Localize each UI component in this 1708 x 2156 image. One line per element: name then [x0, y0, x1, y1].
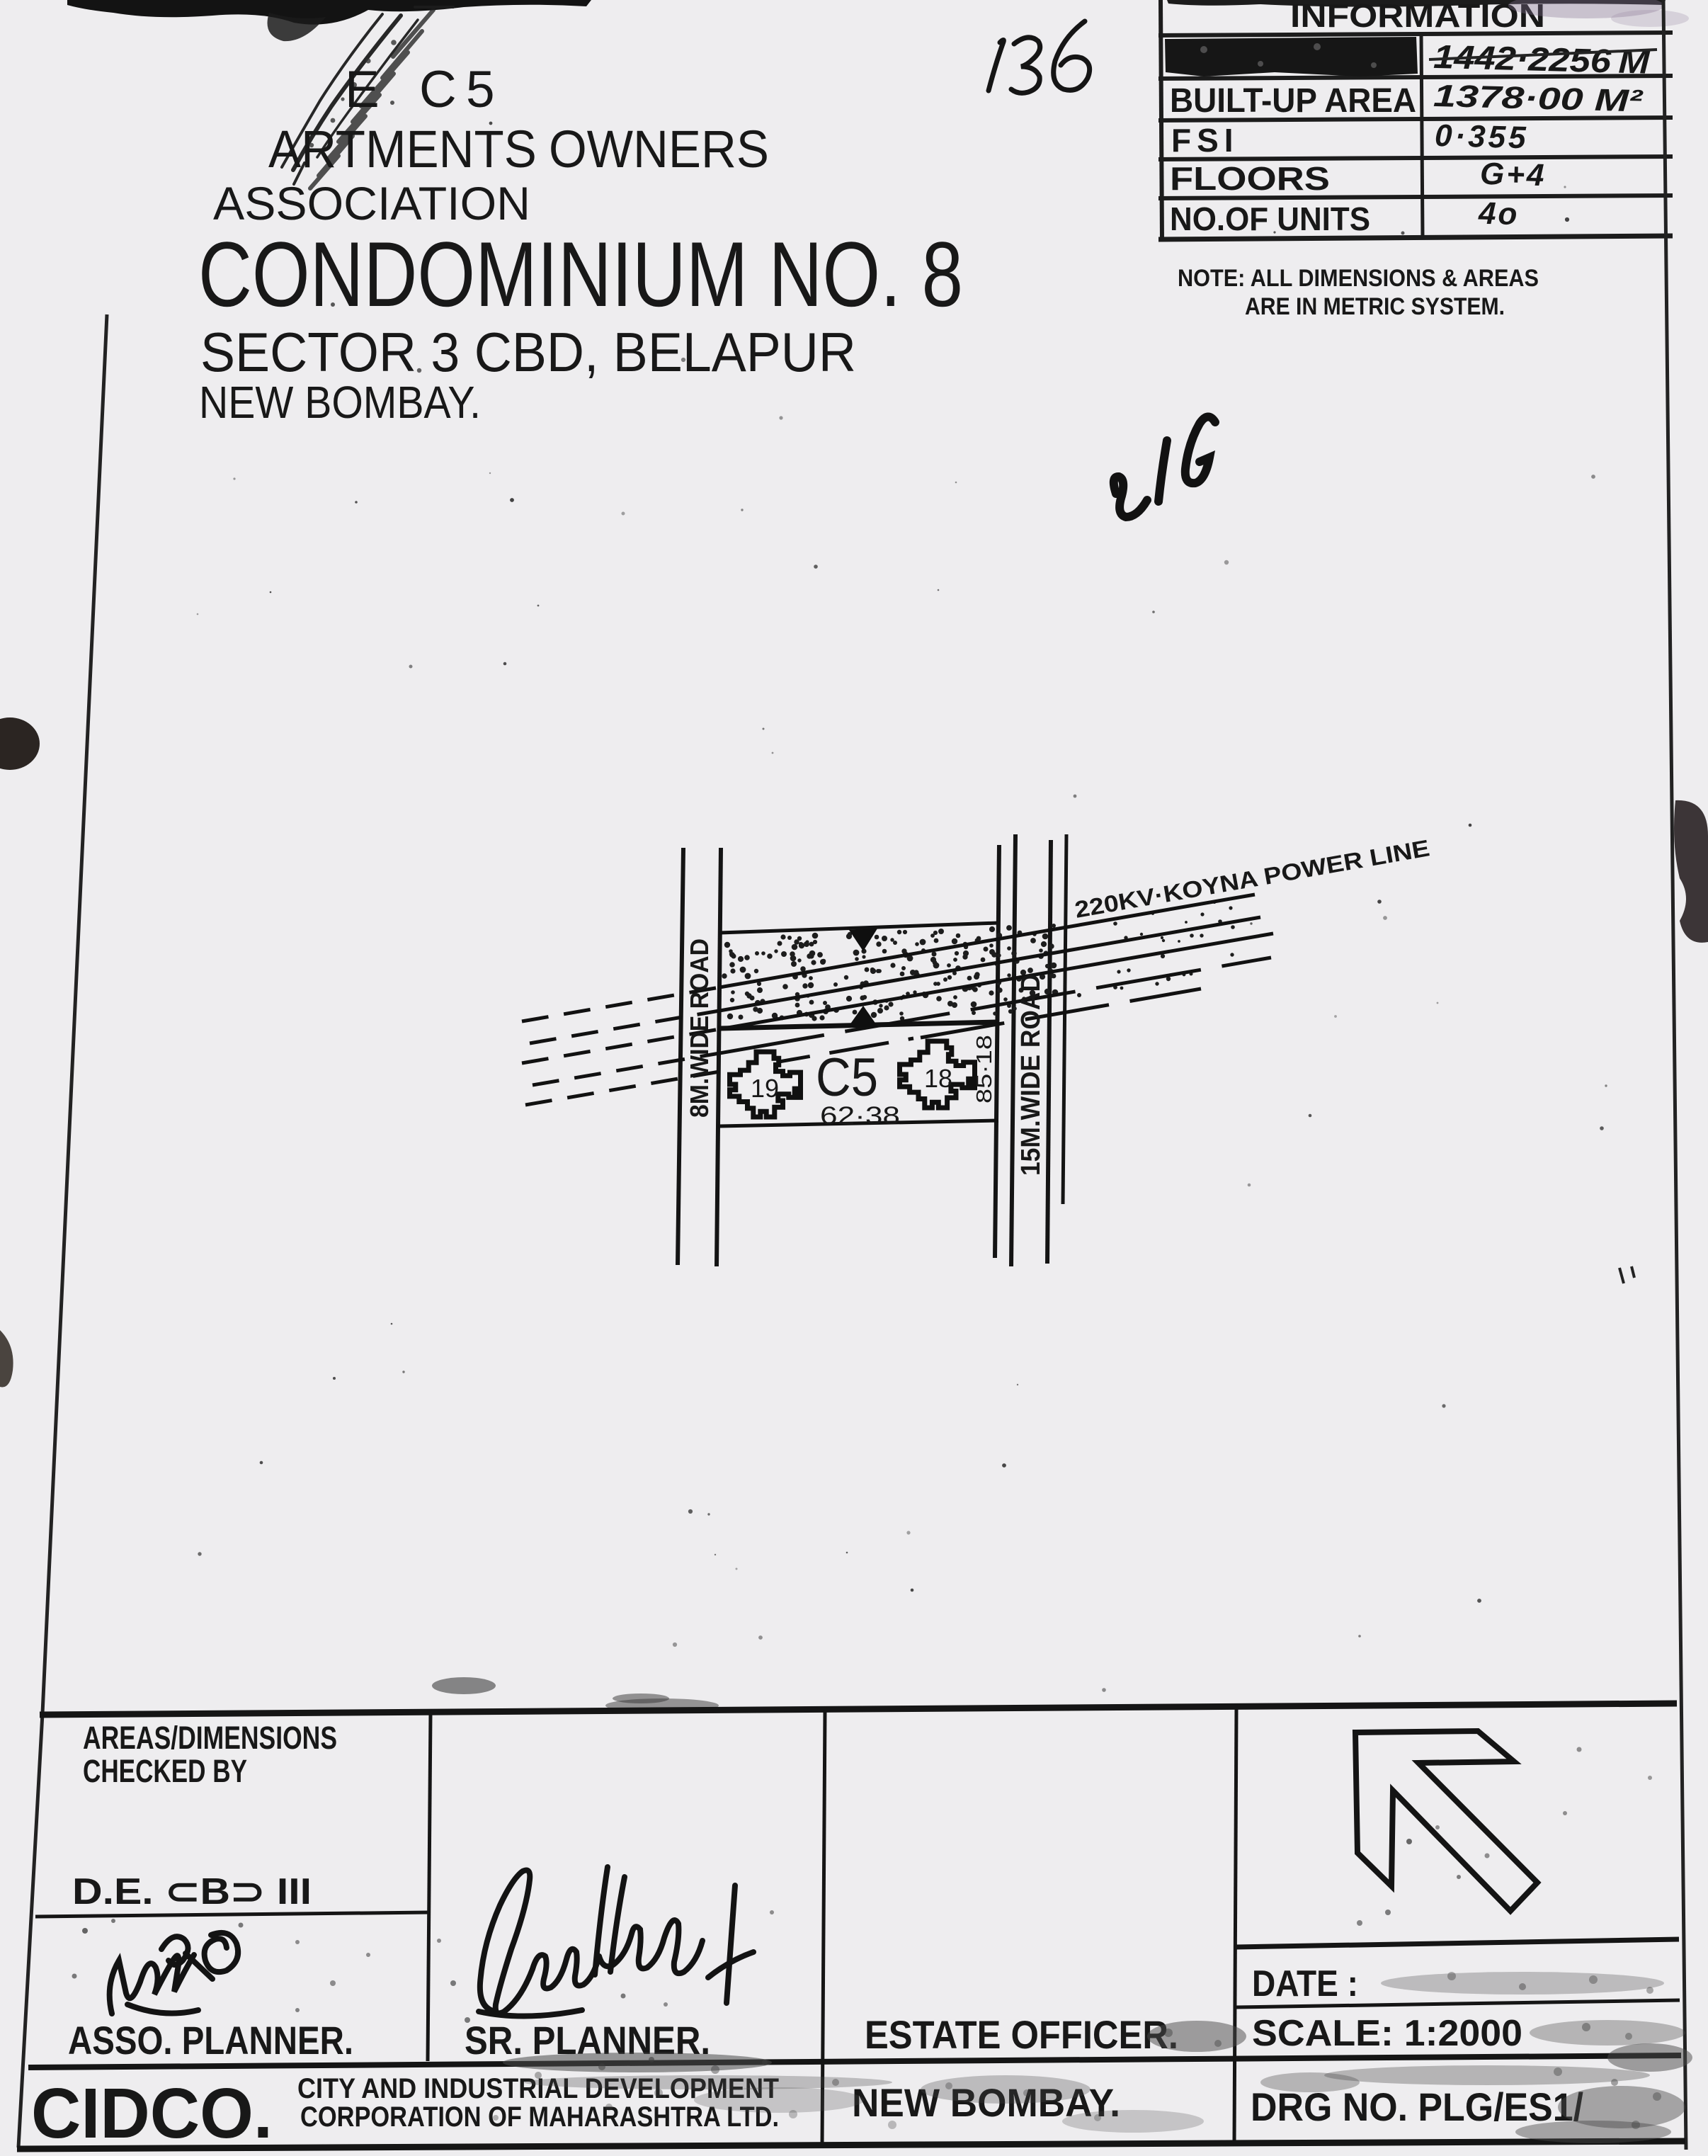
- svg-text:19: 19: [751, 1074, 779, 1103]
- svg-text:ASSOCIATION: ASSOCIATION: [213, 177, 530, 229]
- svg-text:CONDOMINIUM NO. 8: CONDOMINIUM NO. 8: [198, 222, 963, 326]
- svg-text:NEW BOMBAY.: NEW BOMBAY.: [199, 377, 481, 428]
- svg-text:FSI: FSI: [1171, 122, 1239, 159]
- svg-text:D.E. ⊂B⊃ III: D.E. ⊂B⊃ III: [72, 1871, 312, 1912]
- svg-text:CIDCO.: CIDCO.: [31, 2074, 273, 2153]
- svg-text:ESTATE OFFICER.: ESTATE OFFICER.: [865, 2012, 1178, 2057]
- svg-text:4o: 4o: [1477, 196, 1520, 232]
- svg-text:NOTE: ALL DIMENSIONS & AREAS: NOTE: ALL DIMENSIONS & AREAS: [1178, 265, 1539, 292]
- svg-text:1378·00 M²: 1378·00 M²: [1433, 79, 1644, 119]
- svg-text:15M.WIDE ROAD: 15M.WIDE ROAD: [1016, 974, 1046, 1176]
- svg-text:8M.WIDE ROAD: 8M.WIDE ROAD: [685, 938, 714, 1118]
- svg-text:0·355: 0·355: [1434, 118, 1529, 155]
- svg-text:18: 18: [924, 1064, 952, 1093]
- svg-text:BUILT-UP AREA: BUILT-UP AREA: [1170, 82, 1416, 120]
- svg-text:C: C: [419, 61, 457, 118]
- svg-text:G+4: G+4: [1479, 157, 1547, 193]
- svg-text:INFORMATION: INFORMATION: [1290, 0, 1545, 34]
- svg-text:FLOORS: FLOORS: [1170, 160, 1330, 197]
- svg-text:AREAS/DIMENSIONS: AREAS/DIMENSIONS: [83, 1720, 337, 1756]
- svg-text:NO.OF UNITS: NO.OF UNITS: [1170, 200, 1370, 237]
- svg-text:ASSO. PLANNER.: ASSO. PLANNER.: [68, 2018, 353, 2063]
- svg-text:CHECKED BY: CHECKED BY: [83, 1753, 247, 1789]
- svg-text:62·38: 62·38: [820, 1102, 900, 1130]
- svg-text:ARTMENTS OWNERS: ARTMENTS OWNERS: [268, 120, 769, 178]
- svg-text:E: E: [345, 61, 380, 118]
- svg-text:DATE :: DATE :: [1252, 1963, 1358, 2004]
- svg-text:SECTOR 3 CBD, BELAPUR: SECTOR 3 CBD, BELAPUR: [200, 321, 856, 383]
- svg-text:ARE IN METRIC SYSTEM.: ARE IN METRIC SYSTEM.: [1245, 293, 1505, 320]
- svg-text:85·18: 85·18: [972, 1035, 996, 1103]
- svg-text:C5: C5: [816, 1048, 878, 1108]
- svg-text:SCALE: 1:2000: SCALE: 1:2000: [1252, 2013, 1522, 2054]
- svg-text:5: 5: [466, 61, 495, 118]
